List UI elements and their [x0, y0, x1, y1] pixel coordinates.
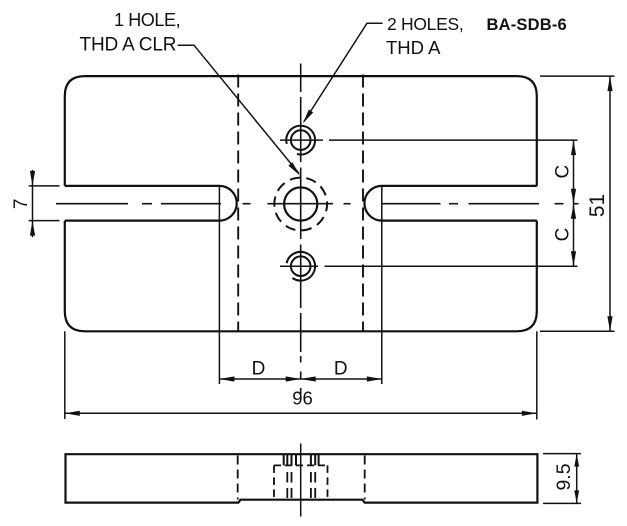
- svg-text:D: D: [334, 359, 348, 380]
- svg-text:BA-SDB-6: BA-SDB-6: [487, 16, 567, 34]
- svg-text:51: 51: [586, 194, 609, 217]
- svg-text:D: D: [252, 359, 266, 380]
- svg-text:THD A CLR: THD A CLR: [80, 35, 177, 56]
- svg-text:1 HOLE,: 1 HOLE,: [114, 10, 180, 30]
- svg-text:9.5: 9.5: [553, 463, 575, 490]
- svg-text:C: C: [553, 228, 574, 242]
- svg-text:96: 96: [292, 388, 313, 409]
- svg-text:2 HOLES,: 2 HOLES,: [387, 14, 463, 34]
- svg-text:C: C: [553, 165, 574, 179]
- svg-text:7: 7: [11, 199, 32, 210]
- svg-text:THD A: THD A: [386, 37, 441, 58]
